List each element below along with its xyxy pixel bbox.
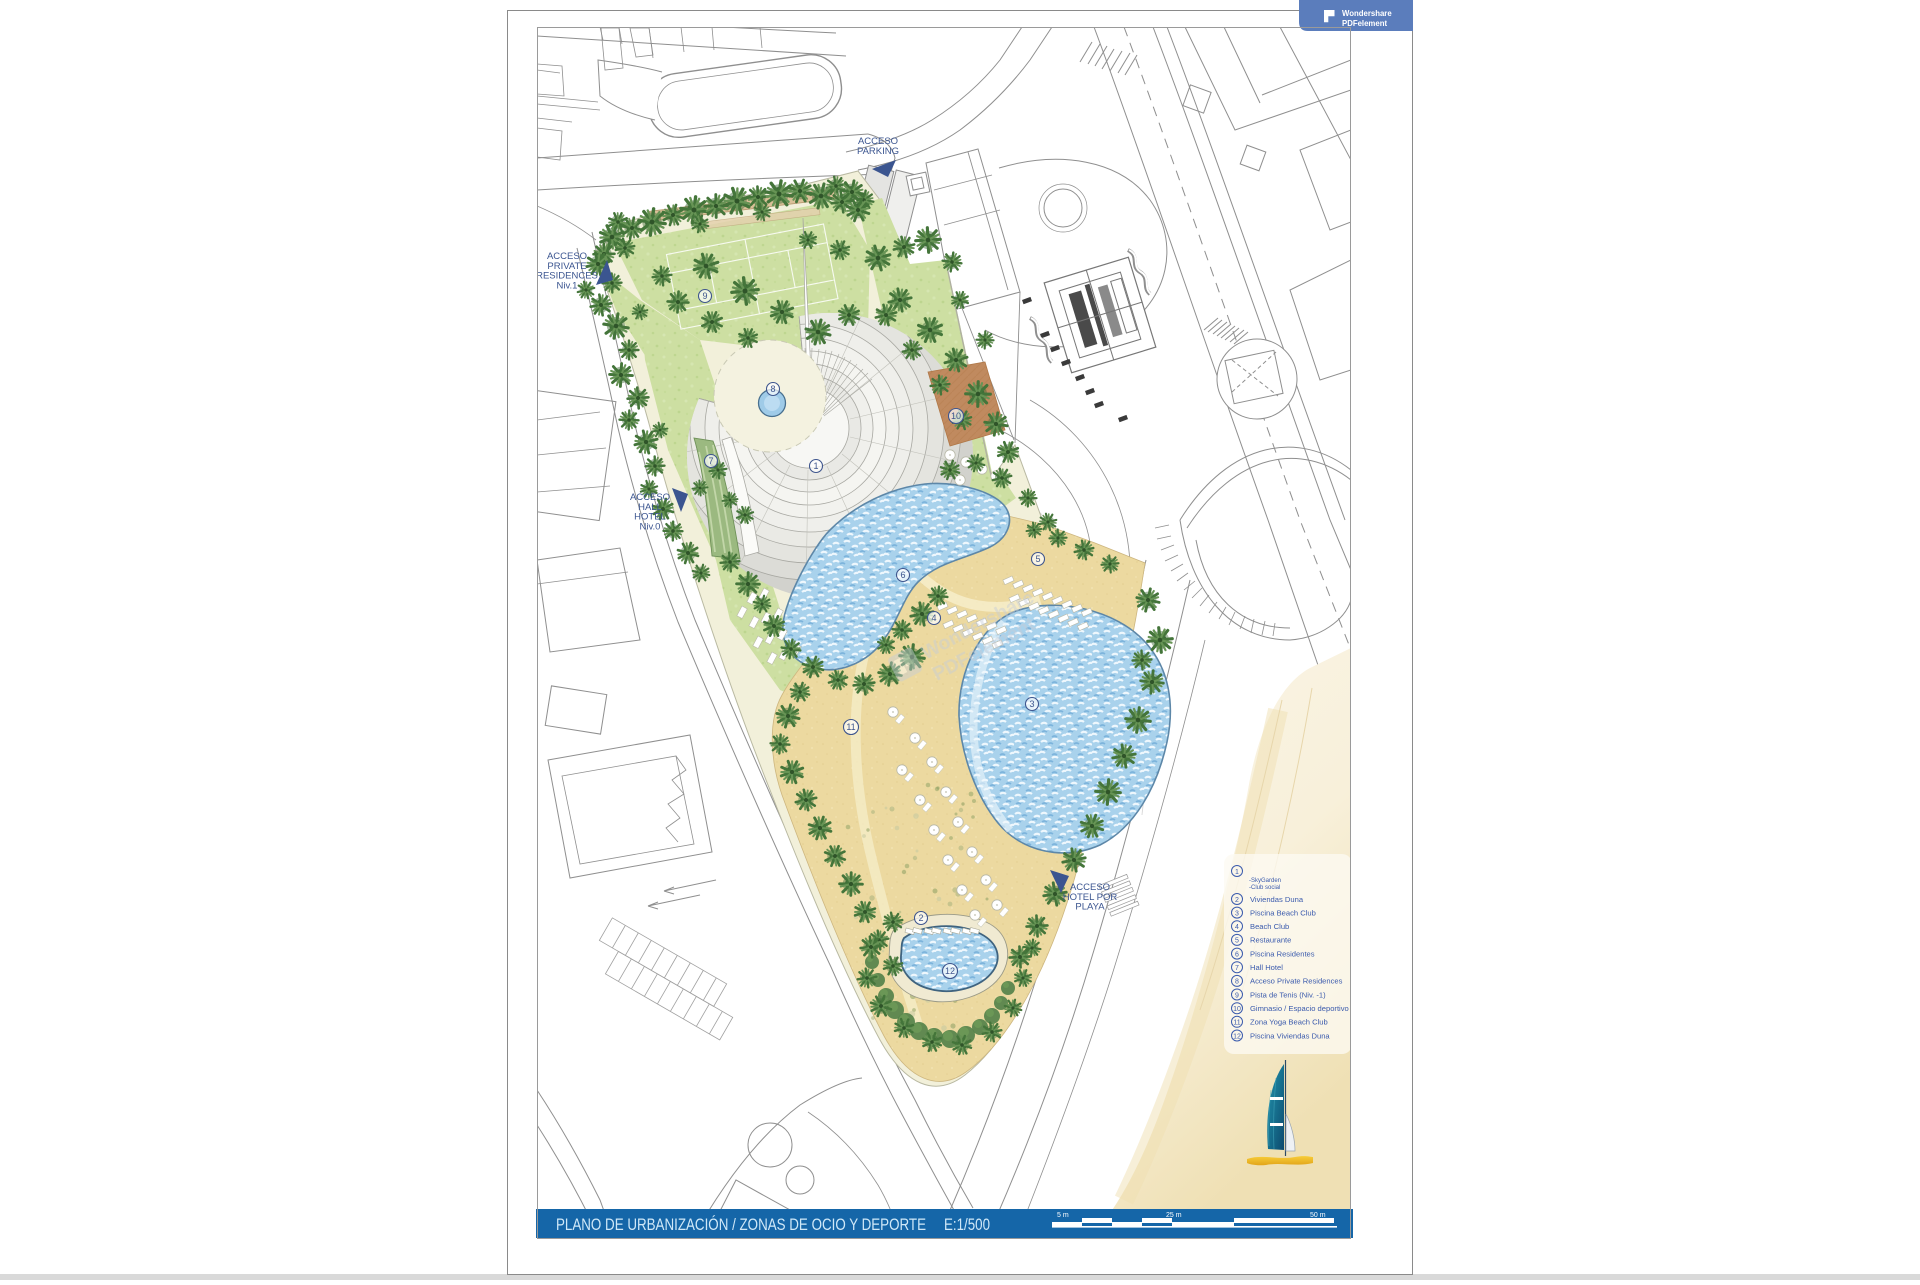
svg-text:4: 4 (931, 613, 936, 623)
svg-text:Piscina Viviendas Duna: Piscina Viviendas Duna (1250, 1031, 1330, 1040)
svg-text:Piscina Residentes: Piscina Residentes (1250, 949, 1315, 958)
svg-text:2: 2 (918, 913, 923, 923)
svg-text:4: 4 (1235, 924, 1239, 931)
svg-text:7: 7 (1235, 965, 1239, 972)
svg-text:E:1/500: E:1/500 (944, 1215, 990, 1234)
svg-text:12: 12 (945, 966, 955, 976)
svg-text:Gimnasio / Espacio deportivo: Gimnasio / Espacio deportivo (1250, 1004, 1349, 1013)
svg-text:25 m: 25 m (1166, 1212, 1182, 1219)
svg-text:12: 12 (1233, 1033, 1241, 1040)
svg-text:5: 5 (1035, 554, 1040, 564)
svg-text:10: 10 (1233, 1006, 1241, 1013)
svg-text:2: 2 (1235, 897, 1239, 904)
svg-text:Wondershare: Wondershare (1342, 9, 1392, 18)
svg-text:3: 3 (1235, 910, 1239, 917)
svg-text:1: 1 (1235, 869, 1239, 876)
svg-text:5 m: 5 m (1057, 1212, 1069, 1219)
svg-text:8: 8 (770, 384, 775, 394)
svg-text:3: 3 (1029, 699, 1034, 709)
svg-text:9: 9 (1235, 992, 1239, 999)
svg-text:9: 9 (702, 291, 707, 301)
svg-text:Acceso Private Residences: Acceso Private Residences (1250, 977, 1343, 986)
svg-text:ACCESOPARKING: ACCESOPARKING (857, 136, 899, 157)
svg-text:11: 11 (1233, 1020, 1240, 1027)
svg-text:Restaurante: Restaurante (1250, 936, 1291, 945)
svg-text:-SkyGarden: -SkyGarden (1249, 878, 1281, 884)
svg-text:10: 10 (951, 411, 961, 421)
svg-text:6: 6 (1235, 951, 1239, 958)
svg-text:11: 11 (846, 722, 855, 732)
svg-text:PDFelement: PDFelement (1342, 19, 1387, 28)
svg-text:-Club social: -Club social (1249, 885, 1280, 891)
svg-text:8: 8 (1235, 979, 1239, 986)
svg-text:5: 5 (1235, 938, 1239, 945)
svg-text:6: 6 (900, 570, 905, 580)
svg-text:Piscina Beach Club: Piscina Beach Club (1250, 908, 1316, 917)
svg-text:1: 1 (813, 461, 818, 471)
svg-text:Hall Hotel: Hall Hotel (1250, 963, 1283, 972)
svg-text:Beach Club: Beach Club (1250, 922, 1289, 931)
svg-text:PLANO DE URBANIZACIÓN / ZONAS: PLANO DE URBANIZACIÓN / ZONAS DE OCIO Y … (556, 1215, 926, 1234)
svg-text:7: 7 (708, 456, 713, 466)
svg-text:50 m: 50 m (1310, 1212, 1326, 1219)
svg-text:Pista de Tenis (Niv. -1): Pista de Tenis (Niv. -1) (1250, 990, 1326, 999)
svg-text:Viviendas Duna: Viviendas Duna (1250, 895, 1304, 904)
svg-text:Zona Yoga Beach Club: Zona Yoga Beach Club (1250, 1018, 1328, 1027)
